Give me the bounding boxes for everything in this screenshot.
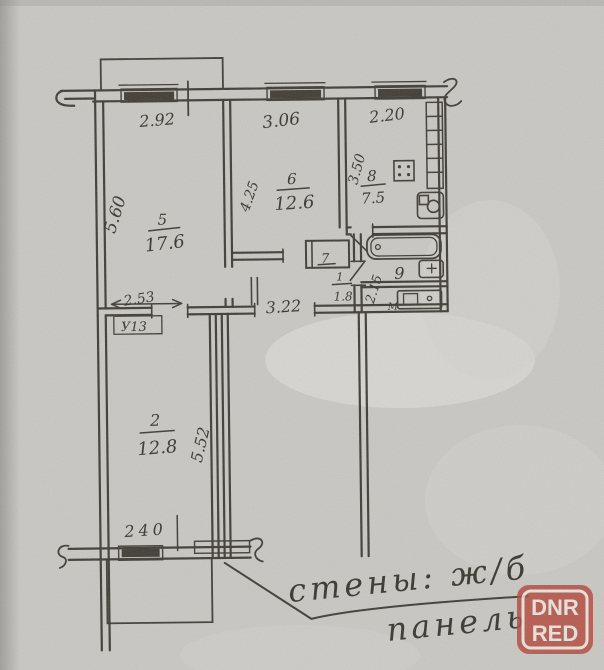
scan-grain-overlay [0, 0, 604, 670]
scanned-floor-plan-page: 2.92 3.06 2.20 5.60 4.25 3.50 2.15 5.52 … [0, 0, 604, 670]
floor-plan-drawing: 2.92 3.06 2.20 5.60 4.25 3.50 2.15 5.52 … [0, 0, 604, 670]
